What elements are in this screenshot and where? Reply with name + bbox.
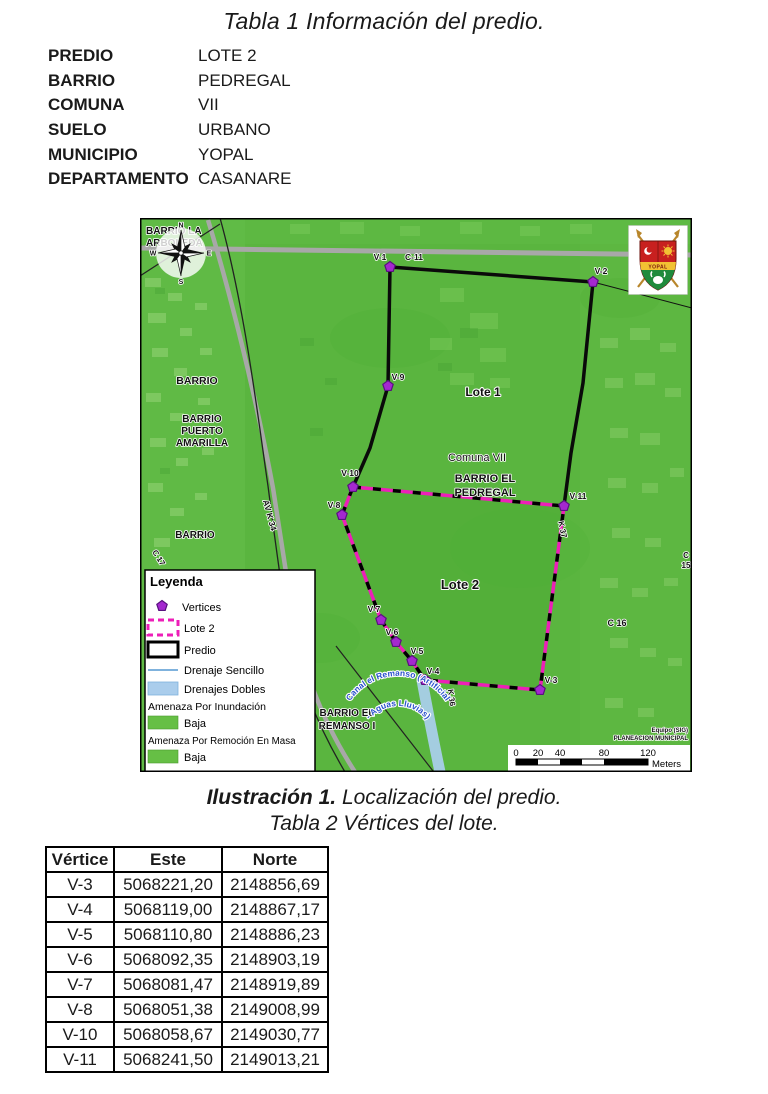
label-v10: V-10	[341, 468, 359, 478]
label-v3: V-3	[545, 675, 558, 685]
cell-vertice: V-8	[46, 997, 114, 1022]
cell-este: 5068058,67	[114, 1022, 222, 1047]
location-map: BARRIO LA ARBOLEDA BARRIO BARRIO PUERTO …	[140, 218, 692, 772]
cell-vertice: V-5	[46, 922, 114, 947]
legend-title: Leyenda	[150, 574, 204, 589]
cell-este: 5068051,38	[114, 997, 222, 1022]
label-v5: V-5	[411, 646, 424, 656]
property-label: SUELO	[48, 120, 198, 140]
scale-bar: 0 20 40 80 120 Meters	[508, 745, 690, 771]
label-barrio-puerto-amarilla: AMARILLA	[176, 438, 228, 449]
cell-este: 5068092,35	[114, 947, 222, 972]
crest-text: YOPAL	[648, 265, 667, 271]
property-value: VII	[198, 95, 219, 115]
col-header-este: Este	[114, 847, 222, 872]
table-row: V-10 5068058,67 2149030,77	[46, 1022, 328, 1047]
map-legend: Leyenda Vertices Lote 2 Predio Drenaje S…	[145, 570, 315, 772]
label-c15: 15	[682, 561, 691, 570]
cell-este: 5068110,80	[114, 922, 222, 947]
property-row: DEPARTAMENTO CASANARE	[48, 167, 292, 192]
table-row: V-5 5068110,80 2148886,23	[46, 922, 328, 947]
property-row: BARRIO PEDREGAL	[48, 69, 292, 94]
label-v11: V-11	[569, 491, 586, 501]
scale-tick: 0	[513, 748, 518, 759]
legend-item-label: Drenajes Dobles	[184, 684, 266, 696]
label-barrio-puerto-amarilla: PUERTO	[181, 426, 223, 437]
compass-n: N	[178, 223, 183, 230]
scale-tick: 80	[599, 748, 610, 759]
legend-item-label: Vertices	[182, 602, 222, 614]
cell-vertice: V-6	[46, 947, 114, 972]
table-header-row: Vértice Este Norte	[46, 847, 328, 872]
scale-tick: 40	[555, 748, 566, 759]
scale-tick: 20	[533, 748, 544, 759]
legend-item-label: Baja	[184, 718, 207, 730]
label-barrio-puerto-amarilla: BARRIO	[182, 414, 222, 425]
property-label: DEPARTAMENTO	[48, 169, 198, 189]
compass-e: E	[207, 251, 212, 258]
property-value: CASANARE	[198, 169, 292, 189]
illustration-caption-number: Ilustración 1.	[207, 786, 337, 809]
property-value: PEDREGAL	[198, 71, 291, 91]
cell-vertice: V-7	[46, 972, 114, 997]
compass-s: S	[179, 279, 184, 286]
table-row: V-6 5068092,35 2148903,19	[46, 947, 328, 972]
property-value: URBANO	[198, 120, 271, 140]
label-barrio-el-remanso: REMANSO I	[319, 721, 376, 732]
vertices-table: Vértice Este Norte V-3 5068221,20 214885…	[45, 846, 329, 1073]
cell-vertice: V-11	[46, 1047, 114, 1072]
property-info-table: PREDIO LOTE 2 BARRIO PEDREGAL COMUNA VII…	[48, 44, 292, 192]
label-v4: V-4	[427, 666, 440, 676]
cell-este: 5068221,20	[114, 872, 222, 897]
label-lote1: Lote 1	[465, 385, 501, 399]
cell-norte: 2148856,69	[222, 872, 328, 897]
label-v6: V-6	[386, 627, 399, 637]
cell-vertice: V-4	[46, 897, 114, 922]
cell-este: 5068081,47	[114, 972, 222, 997]
property-row: PREDIO LOTE 2	[48, 44, 292, 69]
illustration-caption: Ilustración 1. Localización del predio.	[0, 786, 768, 810]
label-comuna-vii: Comuna VII	[448, 452, 506, 464]
legend-item-label: Drenaje Sencillo	[184, 665, 264, 677]
property-value: LOTE 2	[198, 46, 257, 66]
legend-hazard-icon	[148, 750, 178, 763]
legend-hazard-icon	[148, 716, 178, 729]
compass-w: W	[150, 251, 157, 258]
yopal-crest: YOPAL	[629, 226, 688, 295]
legend-predio-icon	[148, 642, 178, 657]
table2-title: Tabla 2 Vértices del lote.	[0, 812, 768, 836]
cell-norte: 2149008,99	[222, 997, 328, 1022]
table-row: V-11 5068241,50 2149013,21	[46, 1047, 328, 1072]
property-label: COMUNA	[48, 95, 198, 115]
scale-unit: Meters	[652, 759, 681, 770]
label-barrio-el-pedregal: PEDREGAL	[454, 487, 515, 499]
page-title: Tabla 1 Información del predio.	[0, 8, 768, 35]
legend-item-label: Lote 2	[184, 623, 215, 635]
cell-este: 5068241,50	[114, 1047, 222, 1072]
cell-norte: 2149030,77	[222, 1022, 328, 1047]
cell-norte: 2148886,23	[222, 922, 328, 947]
scale-tick: 120	[640, 748, 656, 759]
label-v2: V-2	[595, 266, 608, 276]
legend-drainage-fill-icon	[148, 682, 178, 695]
cell-vertice: V-3	[46, 872, 114, 897]
cell-norte: 2148867,17	[222, 897, 328, 922]
label-v1: V-1	[374, 252, 387, 262]
legend-section-header: Amenaza Por Remoción En Masa	[148, 736, 296, 747]
property-row: SUELO URBANO	[48, 118, 292, 143]
label-c16: C 16	[607, 618, 626, 628]
cell-vertice: V-10	[46, 1022, 114, 1047]
legend-section-header: Amenaza Por Inundación	[148, 701, 266, 713]
document-page: { "doc": { "title": "Tabla 1 Información…	[0, 0, 768, 1094]
property-value: YOPAL	[198, 145, 253, 165]
label-v8: V-8	[328, 500, 341, 510]
property-row: MUNICIPIO YOPAL	[48, 142, 292, 167]
table-row: V-4 5068119,00 2148867,17	[46, 897, 328, 922]
label-v7: V-7	[368, 604, 381, 614]
cell-norte: 2148903,19	[222, 947, 328, 972]
cell-norte: 2148919,89	[222, 972, 328, 997]
property-label: BARRIO	[48, 71, 198, 91]
col-header-vertice: Vértice	[46, 847, 114, 872]
property-row: COMUNA VII	[48, 93, 292, 118]
label-c11: C-11	[405, 252, 423, 262]
svg-text:Equipo (SIG): Equipo (SIG)	[652, 728, 688, 734]
illustration-caption-text: Localización del predio.	[336, 786, 561, 809]
svg-text:PLANEACION MUNICIPAL: PLANEACION MUNICIPAL	[614, 736, 689, 742]
map-canvas: BARRIO LA ARBOLEDA BARRIO BARRIO PUERTO …	[140, 218, 692, 772]
cell-este: 5068119,00	[114, 897, 222, 922]
table-row: V-7 5068081,47 2148919,89	[46, 972, 328, 997]
property-label: PREDIO	[48, 46, 198, 66]
label-v9: V-9	[392, 372, 405, 382]
property-label: MUNICIPIO	[48, 145, 198, 165]
cell-norte: 2149013,21	[222, 1047, 328, 1072]
label-barrio-el-pedregal: BARRIO EL	[455, 473, 516, 485]
label-barrio-2: BARRIO	[175, 530, 215, 541]
table-row: V-8 5068051,38 2149008,99	[46, 997, 328, 1022]
label-lote2: Lote 2	[441, 577, 479, 592]
label-barrio: BARRIO	[176, 375, 217, 387]
legend-item-label: Baja	[184, 752, 207, 764]
table-row: V-3 5068221,20 2148856,69	[46, 872, 328, 897]
label-c15: C	[683, 551, 689, 560]
col-header-norte: Norte	[222, 847, 328, 872]
legend-item-label: Predio	[184, 645, 216, 657]
